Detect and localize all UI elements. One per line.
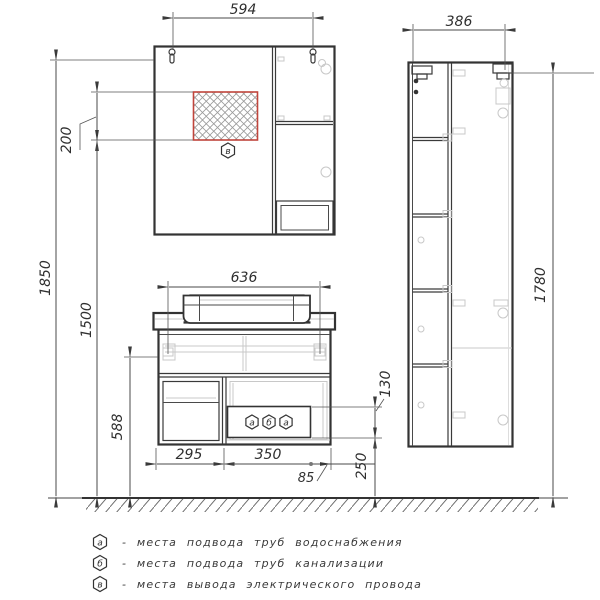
legend-label: - места вывода электрического провода [122,578,422,591]
legend-row-water: а - места подвода труб водоснабжения [94,535,403,550]
dim-1780-label: 1780 [533,267,549,303]
vanity-unit: а б а [154,296,336,445]
legend: а - места подвода труб водоснабжения б -… [94,535,423,592]
electrical-zone-hatch [194,92,258,140]
dim-200-label: 200 [59,127,75,154]
dim-85-label: 85 [298,471,315,486]
dim-1850-label: 1850 [38,260,54,296]
dim-588-label: 588 [110,414,126,441]
dim-636-label: 636 [231,270,258,286]
symbol-letter: а [283,418,289,428]
legend-row-sewer: б - места подвода труб канализации [94,556,385,571]
dim-point [309,462,313,466]
dim-250-label: 250 [354,453,370,480]
symbol-letter: б [266,418,272,428]
fixing-dot [414,90,419,95]
dim-295-label: 295 [176,447,203,463]
symbol-hexagon-sewer: б [263,415,275,429]
legend-label: - места подвода труб канализации [122,557,384,570]
dim-594-label: 594 [230,2,257,18]
symbol-letter: в [97,580,102,590]
symbol-letter: в [225,147,230,157]
legend-label: - места подвода труб водоснабжения [122,536,403,549]
symbol-hexagon-water: а [280,415,292,429]
dim-350-label: 350 [255,447,282,463]
floor-line [48,498,568,512]
dim-386-label: 386 [446,14,473,30]
mirror-cabinet: в [155,47,335,235]
symbol-letter: б [97,559,103,569]
fixing-dot [414,79,419,84]
dim-1500-label: 1500 [79,302,95,338]
symbol-hexagon-water: а [246,415,258,429]
legend-row-electric: в - места вывода электрического провода [94,577,423,592]
tall-cabinet [409,63,514,447]
symbol-letter: а [249,418,255,428]
dim-130-label: 130 [378,371,394,398]
floor-hatching [86,499,538,512]
tall-cabinet-body [409,63,513,447]
technical-drawing: в [0,0,600,600]
symbol-letter: а [97,538,103,548]
symbol-hexagon-electric: в [222,143,235,158]
